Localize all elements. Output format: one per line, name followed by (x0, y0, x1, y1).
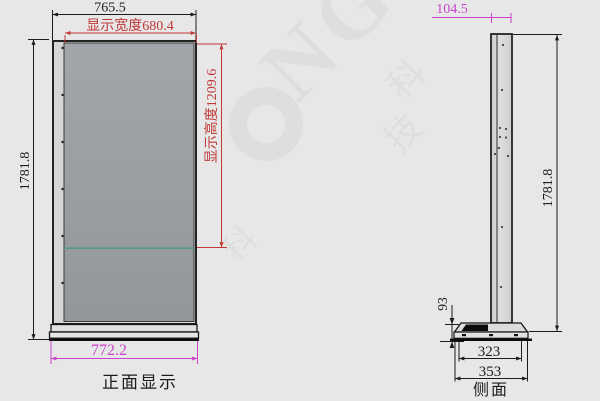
dimension-drawing-page: NG 科 技 科 765.5 显示宽度 (0, 0, 600, 401)
screw-dot (505, 128, 507, 130)
watermark-character: 科 (380, 53, 434, 107)
dim-arrowhead (450, 318, 455, 325)
side-base-foot-line (450, 339, 532, 341)
screw-dot (507, 155, 509, 157)
side-pole-body (491, 34, 512, 323)
front-display-width-label: 显示宽度680.4 (86, 17, 174, 34)
side-view-caption: 侧面 (473, 381, 509, 399)
screw-dot (61, 47, 63, 49)
side-base-outer-width-label: 353 (479, 364, 502, 380)
screw-dot (499, 136, 501, 138)
screw-dot (505, 136, 507, 138)
front-base-width-label: 772.2 (91, 342, 127, 359)
screw-dot (61, 188, 63, 190)
screw-dot (498, 147, 500, 149)
screw-dot (61, 94, 63, 96)
screw-dot (501, 226, 503, 228)
watermark-character: 技 (377, 107, 431, 161)
side-dim-overall-height: 1781.8 (513, 35, 562, 332)
side-view: 104.5 1781.8 93 323 353 侧面 (432, 2, 562, 399)
bolt (514, 334, 518, 336)
front-dim-base-width: 772.2 (51, 341, 198, 364)
screw-dot (499, 127, 501, 129)
side-overall-height-label: 1781.8 (541, 169, 556, 208)
side-dim-base-inner-width: 323 (459, 341, 522, 362)
screw-dot (61, 141, 63, 143)
screw-dot (502, 44, 504, 46)
screw-dot (500, 286, 502, 288)
front-overall-width-label: 765.5 (94, 1, 126, 16)
screw-dot (494, 153, 496, 155)
side-base-height-label: 93 (435, 297, 450, 311)
front-dim-overall-height: 1781.8 (18, 40, 49, 340)
screw-dot (61, 235, 63, 237)
front-view: 765.5 显示宽度680.4 1781.8 显示高度1209.6 772.2 … (18, 1, 227, 393)
dim-arrowhead (450, 342, 455, 349)
front-dim-display-height: 显示高度1209.6 (197, 44, 227, 248)
watermark-character: 科 (216, 220, 264, 268)
front-display-height-label: 显示高度1209.6 (203, 69, 220, 164)
front-screen-panel (64, 43, 194, 322)
side-dim-depth: 104.5 (432, 2, 512, 23)
side-base-inner-width-label: 323 (478, 344, 501, 360)
bolt (462, 334, 466, 336)
front-view-caption: 正面显示 (102, 373, 178, 392)
front-dim-display-width: 显示宽度680.4 (65, 17, 197, 43)
front-base-foot-line (49, 339, 199, 341)
bolt (489, 334, 493, 336)
side-depth-label: 104.5 (436, 2, 468, 17)
side-base-black-insert (462, 325, 489, 332)
screw-dot (501, 89, 503, 91)
front-base-lower (50, 332, 199, 338)
drawing-canvas: NG 科 技 科 765.5 显示宽度 (0, 0, 600, 401)
front-overall-height-label: 1781.8 (18, 152, 33, 191)
watermark-logo-ring (238, 96, 294, 152)
screw-dot (61, 282, 63, 284)
front-base-upper (51, 325, 197, 333)
